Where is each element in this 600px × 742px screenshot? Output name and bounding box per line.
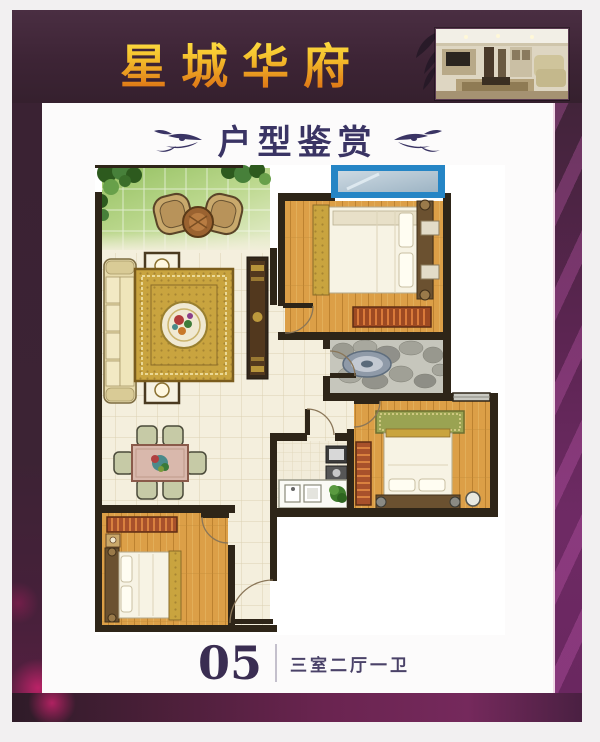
bedroom2-wardrobe [356, 442, 371, 505]
tv-cabinet [247, 257, 268, 379]
section-heading-row: 户型鉴赏 [42, 115, 553, 163]
floor-plan [95, 165, 505, 635]
flourish-right-icon [392, 124, 444, 154]
flyer-page: { "banner": { "title": "星城华府" }, "sectio… [0, 0, 600, 742]
bedroom2-window [453, 393, 490, 401]
frame-right [553, 103, 582, 693]
layout-description: 三室二厅一卫 [290, 651, 410, 676]
unit-number: 05 [198, 640, 262, 686]
interior-photo [435, 28, 569, 100]
master-bed [313, 200, 439, 300]
content-card: 户型鉴赏 [42, 103, 555, 693]
caption-divider [275, 644, 277, 682]
caption: 05 三室二厅一卫 [198, 637, 410, 689]
master-window [331, 165, 445, 198]
sofa [104, 259, 136, 403]
flourish-left-icon [152, 124, 204, 154]
project-title: 星城华府 [52, 28, 432, 88]
master-dresser [353, 307, 431, 327]
kitchen-counter [279, 480, 347, 508]
frame-bottom [12, 693, 582, 722]
frame-left [12, 103, 42, 693]
coffee-table [161, 302, 207, 348]
room-bathroom [330, 340, 448, 393]
section-heading: 户型鉴赏 [218, 115, 378, 164]
kitchen-appliances [326, 446, 347, 480]
bedroom3-wardrobe [107, 517, 177, 532]
